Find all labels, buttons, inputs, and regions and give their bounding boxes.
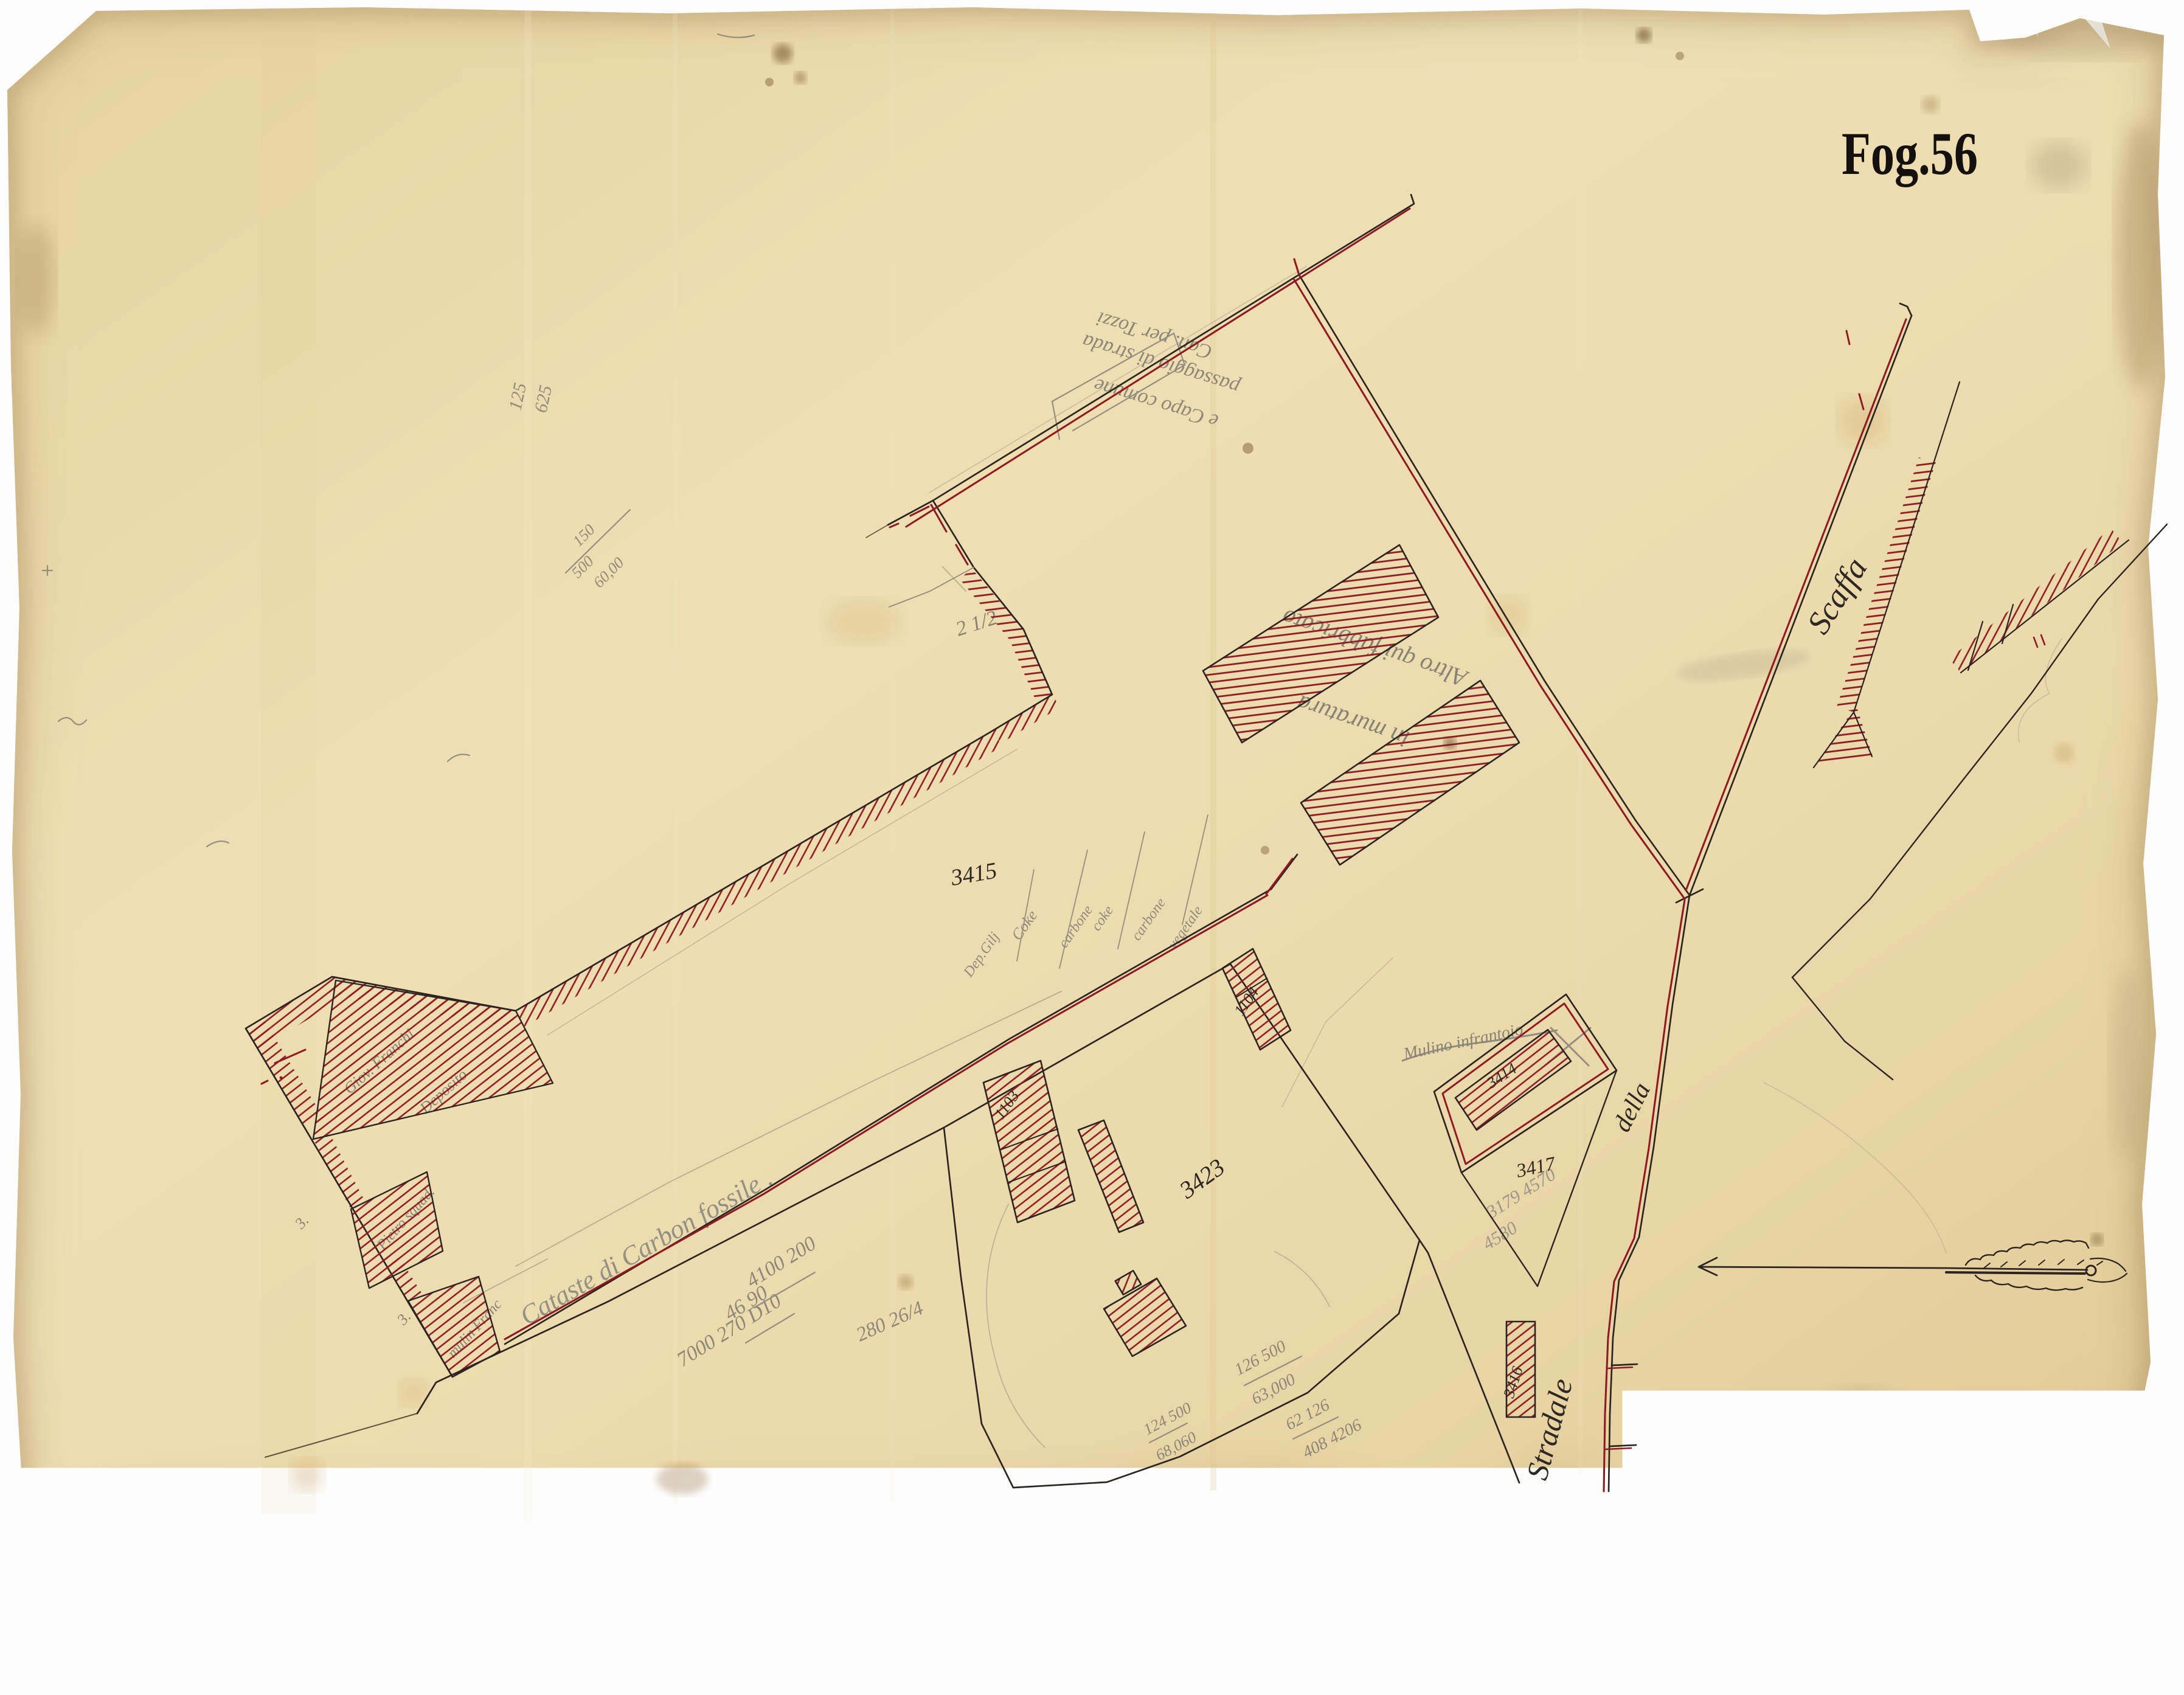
- svg-text:Fog.56: Fog.56: [1842, 120, 1978, 187]
